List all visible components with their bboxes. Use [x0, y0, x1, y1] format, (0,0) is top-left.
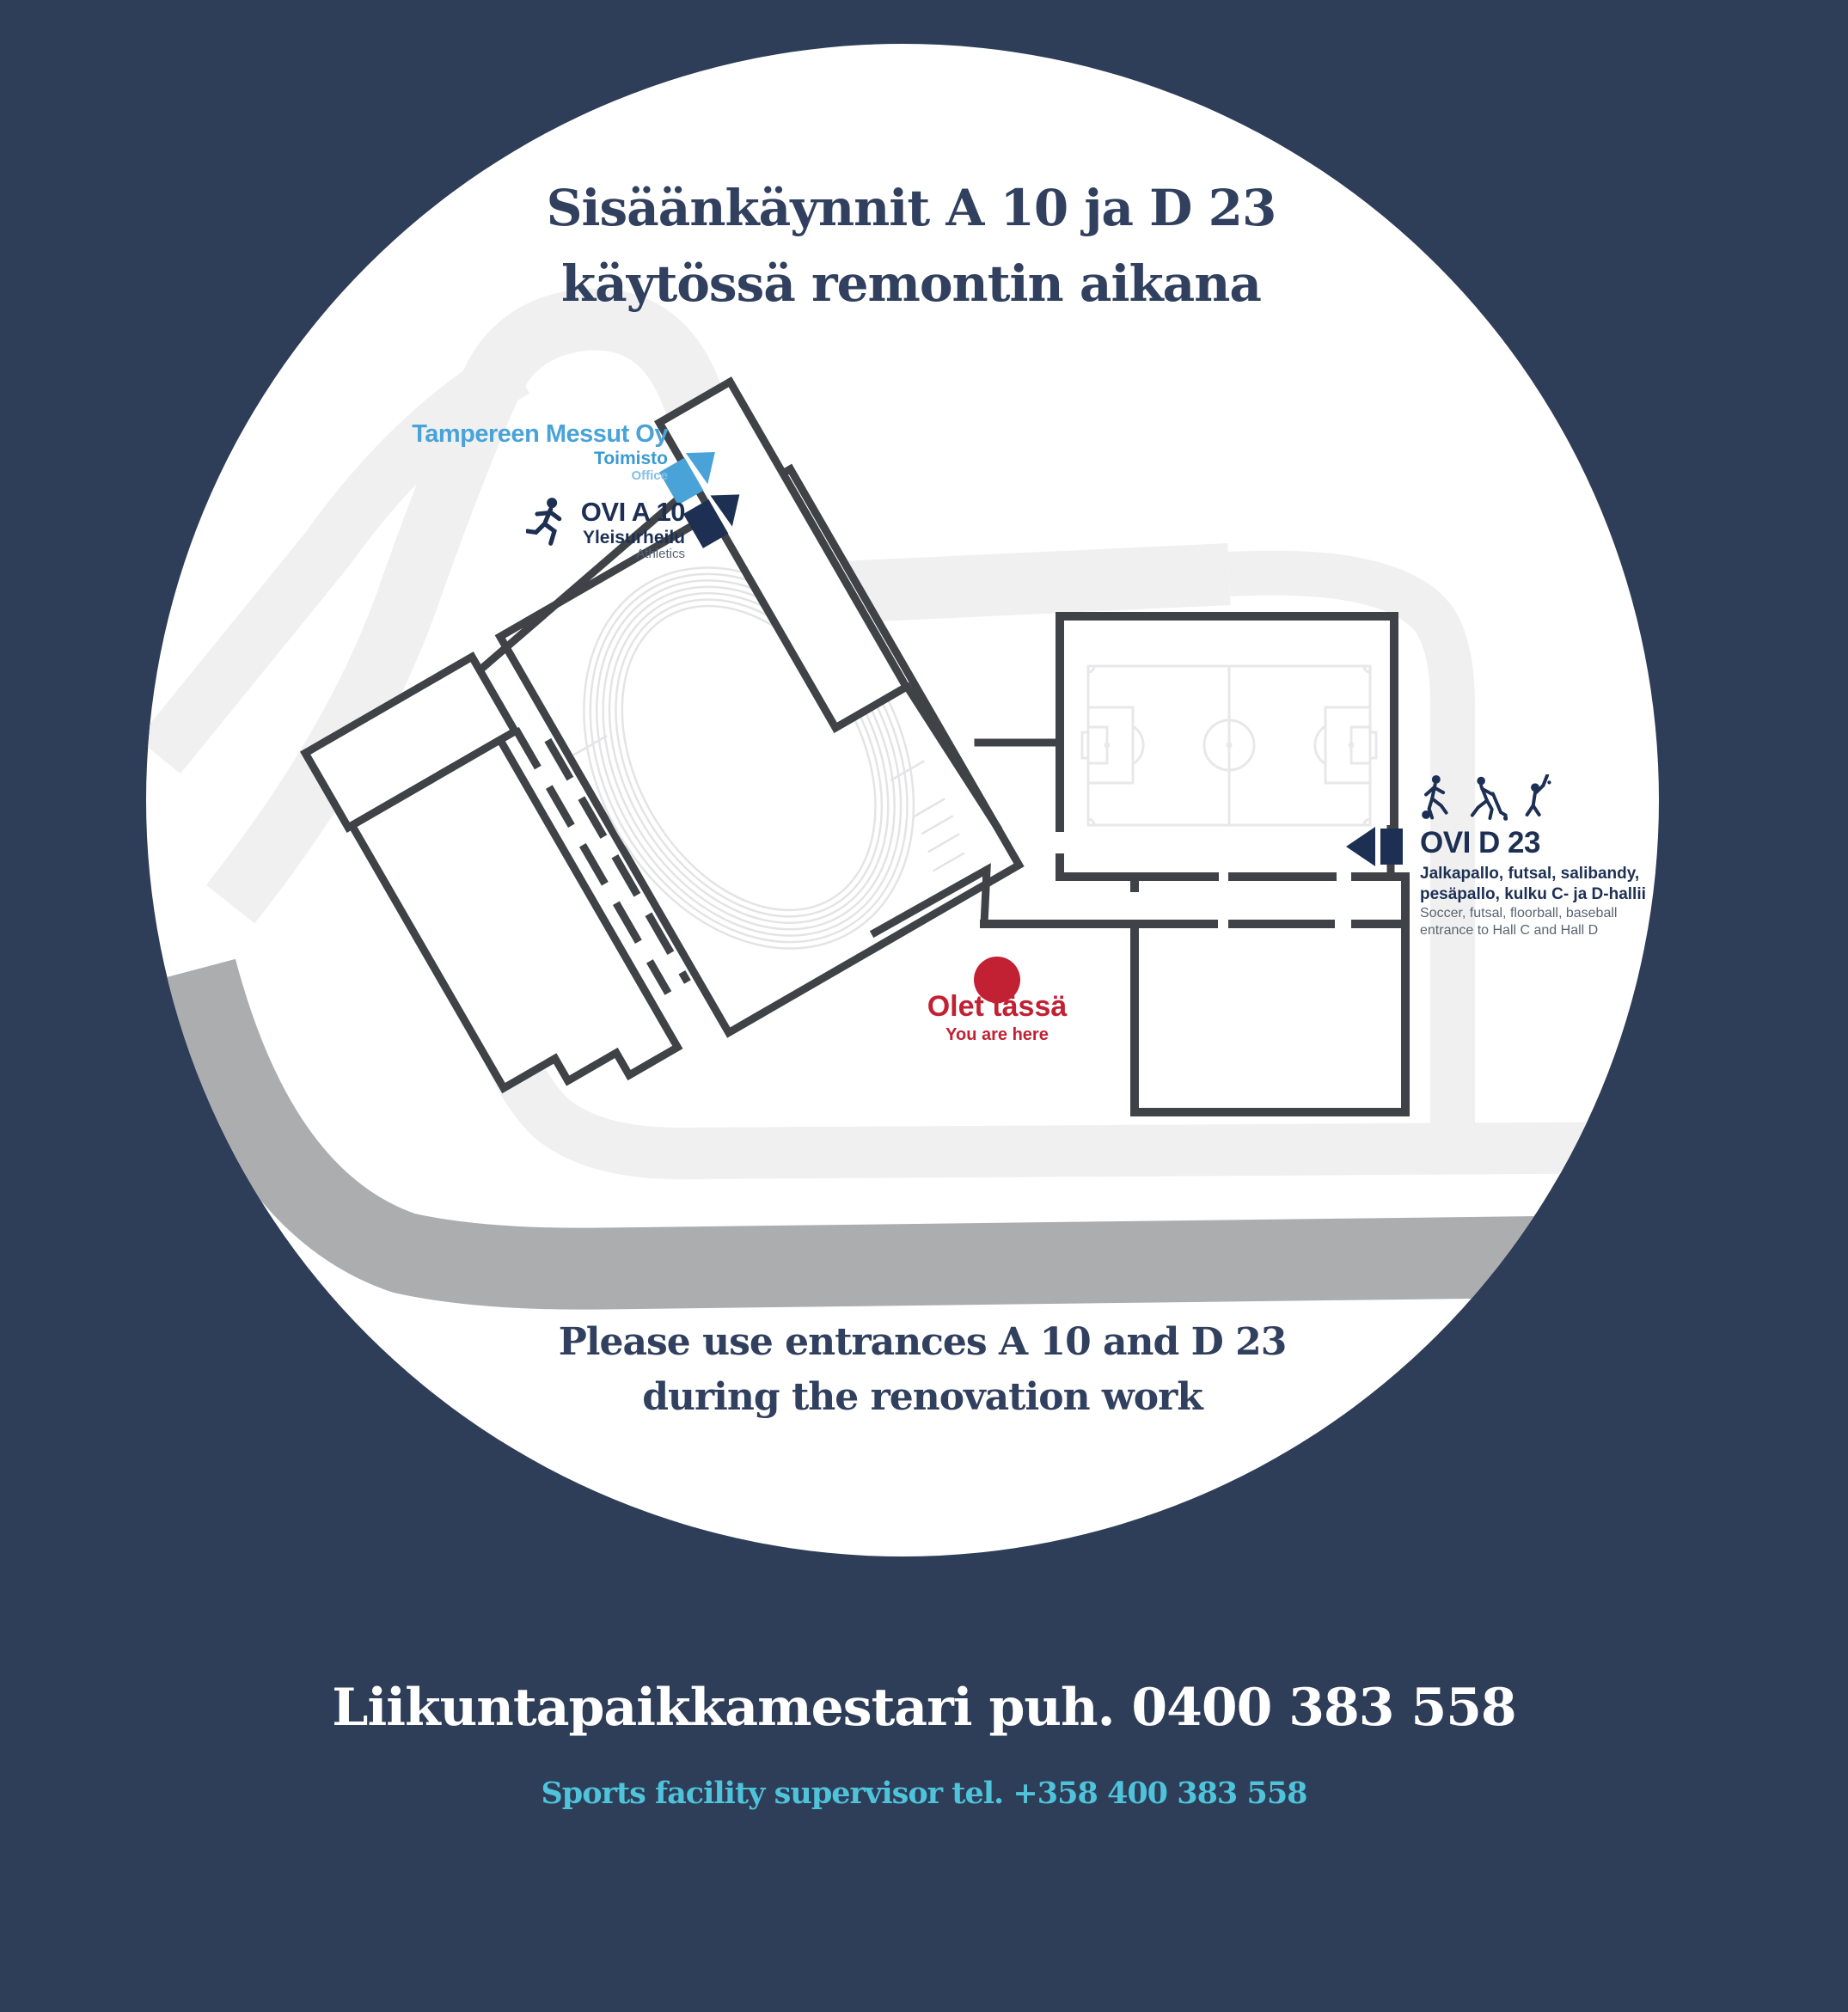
supervisor-phone-fi: Liikuntapaikkamestari puh. 0400 383 558 — [0, 1678, 1848, 1738]
entrance-d23-label: OVI D 23 Jalkapallo, futsal, salibandy, … — [1420, 826, 1646, 939]
d23-name: OVI D 23 — [1420, 826, 1646, 859]
company-name: Tampereen Messut Oy — [412, 420, 668, 448]
title-line-2: käytössä remontin aikana — [0, 246, 1822, 321]
d23-sports-fi-2: pesäpallo, kulku C- ja D-hallii — [1420, 884, 1646, 905]
d23-sport-icons — [1418, 774, 1552, 821]
room-d-fill — [1135, 924, 1405, 1112]
d23-sports-en-1: Soccer, futsal, floorball, baseball — [1420, 905, 1646, 922]
you-are-here-fi: Olet tässä — [868, 990, 1126, 1023]
office-label-en: Office — [412, 469, 668, 484]
supervisor-phone-en: Sports facility supervisor tel. +358 400… — [0, 1776, 1848, 1811]
runner-icon — [526, 497, 566, 548]
you-are-here-en: You are here — [868, 1025, 1126, 1044]
you-are-here-label: Olet tässä You are here — [868, 990, 1126, 1044]
entrance-a10-label: OVI A 10 Yleisurheilu Athletics — [581, 498, 685, 562]
d23-sports-en-2: entrance to Hall C and Hall D — [1420, 922, 1646, 939]
office-label: Tampereen Messut Oy Toimisto Office — [412, 420, 668, 484]
subtitle-en: Please use entrances A 10 and D 23 durin… — [0, 1315, 1845, 1425]
a10-sport-fi: Yleisurheilu — [581, 528, 685, 548]
office-label-fi: Toimisto — [412, 449, 668, 469]
a10-name: OVI A 10 — [581, 498, 685, 528]
a10-sport-en: Athletics — [581, 547, 685, 562]
baseball-batter-icon — [1518, 774, 1552, 821]
floorball-player-icon — [1466, 774, 1508, 821]
title-line-1: Sisäänkäynnit A 10 ja D 23 — [0, 170, 1822, 246]
subtitle-line-1: Please use entrances A 10 and D 23 — [0, 1315, 1845, 1370]
soccer-player-icon — [1418, 774, 1456, 821]
d23-sports-fi-1: Jalkapallo, futsal, salibandy, — [1420, 864, 1646, 884]
subtitle-line-2: during the renovation work — [0, 1370, 1845, 1425]
page-title: Sisäänkäynnit A 10 ja D 23 käytössä remo… — [0, 170, 1822, 321]
